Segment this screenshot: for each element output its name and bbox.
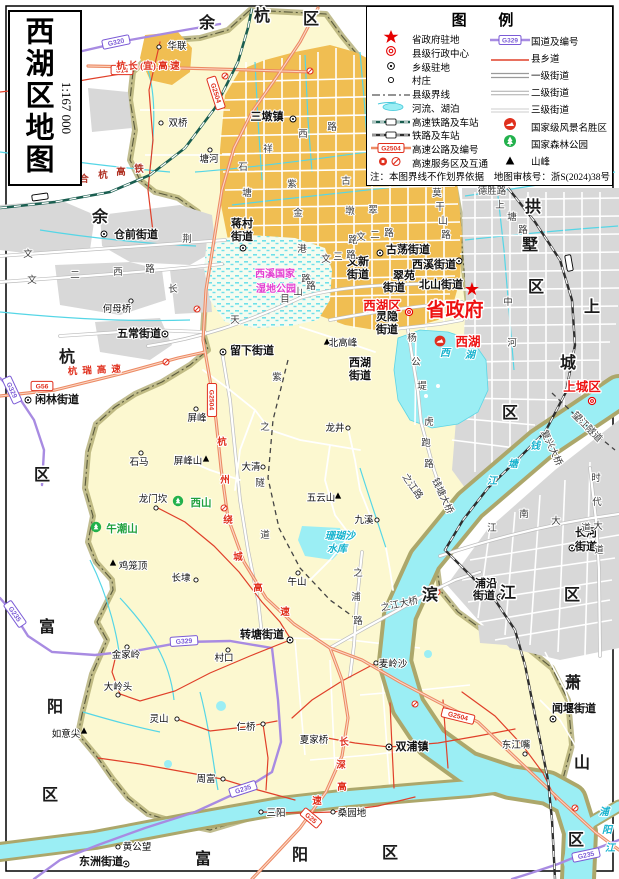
- map-label: 长: [339, 736, 349, 748]
- road-badge: G329: [2, 376, 22, 405]
- map-label: 周富: [196, 773, 215, 785]
- village-marker: [261, 465, 265, 469]
- county-outer: [405, 308, 412, 315]
- map-label: 西: [298, 129, 308, 140]
- map-label: 文: [321, 253, 331, 265]
- village-marker: [159, 121, 163, 125]
- map-label: 之: [353, 567, 363, 579]
- map-label: 村口: [214, 652, 233, 664]
- map-label: 江: [500, 584, 516, 602]
- railway-station-marker: [32, 193, 49, 201]
- map-label: 区: [303, 10, 319, 28]
- township-dot: [552, 718, 554, 720]
- forest-icon: [489, 134, 531, 153]
- map-label: 隧: [255, 477, 265, 489]
- map-label: 速: [280, 606, 290, 618]
- map-label: 省政府: [425, 298, 483, 321]
- map-label: 灵隐: [376, 309, 398, 323]
- map-label: 余: [91, 207, 109, 226]
- map-label: 绕: [223, 514, 233, 526]
- map-label: 代: [592, 497, 602, 508]
- map-label: 道: [594, 544, 604, 556]
- map-label: 上: [584, 298, 600, 316]
- map-label: 阳: [292, 846, 308, 864]
- county-road-icon: [489, 49, 531, 67]
- village-marker: [375, 518, 379, 522]
- map-label: 区: [42, 786, 58, 804]
- township-marker: [550, 716, 556, 722]
- map-label: 西溪街道: [412, 257, 456, 271]
- map-label: 道: [581, 522, 591, 534]
- map-label: 大清: [241, 461, 261, 473]
- township-dot: [388, 746, 390, 748]
- map-label: 麦岭沙: [379, 658, 408, 670]
- map-label: 高: [337, 781, 347, 793]
- road-badge: G329: [170, 635, 198, 646]
- map-label: 杭 长 (宜) 高 速: [116, 60, 180, 72]
- map-label: 闲林街道: [35, 392, 79, 406]
- map-label: 拱: [525, 197, 541, 216]
- map-label: 跑: [421, 437, 431, 449]
- village-marker: [374, 661, 378, 665]
- map-label: 虎: [424, 416, 434, 428]
- map-label: 东江嘴: [502, 739, 531, 751]
- township-marker: [101, 231, 107, 237]
- road-badge-text: G2504: [208, 390, 215, 411]
- township-marker: [240, 245, 246, 251]
- map-label: 区: [382, 844, 398, 862]
- map-label: 文: [356, 231, 366, 243]
- interchange-icon: [163, 359, 169, 365]
- map-label: 街道: [348, 368, 371, 382]
- map-label: 留下街道: [230, 343, 274, 357]
- map-label: 大: [551, 515, 561, 527]
- map-label: 上: [495, 200, 505, 211]
- township-dot: [27, 399, 29, 401]
- svg-text:G329: G329: [502, 37, 518, 44]
- map-label: 北山街道: [419, 277, 463, 291]
- map-label: 路: [327, 121, 337, 133]
- interchange-icon: [194, 306, 200, 312]
- road-badge: G320: [102, 35, 131, 50]
- map-label: 荆: [182, 233, 192, 245]
- map-label: 墩: [345, 205, 355, 217]
- map-label: 塘河: [199, 153, 219, 165]
- map-label: 区: [568, 831, 584, 849]
- map-label: 街道: [382, 280, 405, 294]
- village-marker: [157, 45, 161, 49]
- map-label: 杭: [98, 169, 108, 181]
- map-label: 区: [528, 278, 544, 296]
- map-label: 转塘街道: [240, 627, 284, 641]
- map-label: 阳: [47, 698, 63, 716]
- road-badge: G56: [31, 381, 53, 390]
- map-label: 三墩镇: [251, 109, 284, 123]
- map-label: 何母桥: [103, 303, 132, 315]
- map-label: 上城区: [563, 379, 601, 394]
- map-label: 长: [168, 283, 178, 295]
- village-marker: [116, 845, 120, 849]
- village-marker: [523, 752, 527, 756]
- map-label: 屏峰山: [174, 456, 203, 467]
- map-label: 浦: [351, 591, 361, 603]
- village-marker: [259, 810, 263, 814]
- village-marker: [221, 777, 225, 781]
- map-label: 州: [219, 475, 230, 486]
- map-label: 西: [113, 267, 123, 278]
- map-label: 翠苑: [393, 268, 415, 282]
- map-label: 铁: [134, 163, 144, 175]
- map-label: 西溪国家: [255, 267, 296, 280]
- village-marker: [175, 717, 179, 721]
- legend-label: 县乡道: [531, 51, 560, 65]
- map-label: 屏峰: [187, 413, 207, 424]
- map-label: 西湖: [455, 334, 480, 349]
- map-label: 路: [441, 229, 451, 241]
- interchange-icon: [412, 701, 418, 707]
- map-label: 路: [145, 263, 155, 275]
- title-box: 西湖区地图 1:167 000: [8, 10, 82, 186]
- map-label: 龙井: [325, 422, 344, 434]
- map-label: 公: [411, 357, 421, 368]
- map-label: 紫: [272, 372, 282, 383]
- township-marker: [287, 637, 293, 643]
- street2-icon: [489, 83, 531, 101]
- map-label: 桑园地: [338, 807, 367, 819]
- township-dot: [222, 351, 224, 353]
- map-label: 石马: [129, 457, 148, 468]
- village-marker: [116, 693, 120, 697]
- township-dot: [164, 333, 166, 335]
- map-label: 区: [34, 466, 50, 484]
- map-label: 二: [370, 231, 380, 241]
- map-label: 速: [312, 795, 322, 807]
- village-marker: [331, 810, 335, 814]
- legend-label: 一级街道: [531, 68, 569, 82]
- village-marker: [129, 299, 133, 303]
- map-label: 仓前街道: [113, 227, 158, 241]
- map-label: 城: [560, 354, 576, 372]
- legend-label: 县级界线: [412, 87, 450, 101]
- village-marker: [125, 645, 129, 649]
- legend-title: 图 例: [367, 9, 612, 30]
- map-label: 滨: [422, 585, 438, 604]
- map-label: 街道: [346, 267, 369, 281]
- map-label: 古荡街道: [386, 242, 430, 256]
- township-dot: [125, 863, 127, 865]
- map-label: 山: [574, 754, 590, 772]
- map-label: 金: [293, 207, 303, 219]
- map-label: 路: [306, 280, 316, 292]
- scenic-icon: [489, 117, 531, 136]
- legend-note: 注：本图界线不作划界依据 地图审核号：浙S(2024)38号: [370, 169, 610, 183]
- village-marker: [226, 648, 230, 652]
- legend-label: 山峰: [531, 154, 550, 168]
- map-label: 古: [341, 175, 351, 187]
- township-marker: [162, 331, 168, 337]
- village-marker: [194, 407, 198, 411]
- village-marker: [346, 426, 350, 430]
- township-marker: [123, 861, 129, 867]
- township-marker: [456, 258, 462, 264]
- map-label: 珊瑚沙: [325, 530, 356, 542]
- map-label: 塘: [507, 211, 517, 223]
- township-dot: [458, 260, 460, 262]
- map-label: 区: [502, 404, 518, 422]
- lake-island: [436, 384, 440, 388]
- map-label: 文: [27, 274, 37, 286]
- map-label: 夏家桥: [300, 734, 329, 746]
- interchange-icon: [572, 805, 578, 811]
- map-label: 区: [564, 586, 580, 604]
- township-dot: [289, 639, 291, 641]
- map-label: 紫: [287, 179, 297, 190]
- map-label: 道: [260, 529, 270, 541]
- township-marker: [25, 397, 31, 403]
- map-label: 北高峰: [329, 337, 358, 349]
- map-label: 九溪: [354, 514, 374, 526]
- road-badge: G2504: [207, 384, 216, 417]
- map-label: 水库: [327, 543, 349, 555]
- street1-icon: [489, 66, 531, 84]
- county-center-marker: [588, 397, 595, 404]
- township-dot: [571, 547, 573, 549]
- map-label: 三阳: [266, 808, 285, 819]
- map-label: 石: [238, 163, 248, 173]
- interchange-icon: [307, 68, 313, 74]
- legend-label: 河流、湖泊: [412, 101, 460, 115]
- legend: 图 例 省政府驻地 县级行政中心 乡级驻地 村庄 县级界线 河流、湖泊 高速铁路…: [366, 6, 613, 186]
- map-label: 中: [503, 296, 513, 308]
- map-label: 三: [333, 253, 343, 263]
- legend-note-text: 注：本图界线不作划界依据: [370, 169, 484, 183]
- road-badge: G235: [3, 600, 26, 628]
- scenic-icon: [435, 336, 446, 347]
- map-label: 鸡笼顶: [119, 560, 148, 572]
- map-title: 西湖区地图: [16, 16, 58, 176]
- map-label: 萧: [565, 673, 581, 692]
- map-label: 南: [519, 508, 529, 520]
- map-label: 蒋村: [231, 216, 253, 230]
- map-label: 长埭: [171, 572, 191, 584]
- legend-left-column: 省政府驻地 县级行政中心 乡级驻地 村庄 县级界线 河流、湖泊 高速铁路及车站 …: [370, 32, 488, 170]
- legend-label: 二级街道: [531, 85, 569, 99]
- map-label: 东洲街道: [79, 854, 123, 868]
- township-marker: [220, 349, 226, 355]
- legend-label: 村庄: [412, 73, 431, 87]
- map-label: 仁桥: [236, 721, 256, 733]
- map-label: 余: [198, 13, 216, 32]
- map-label: 墅: [522, 236, 538, 254]
- lake-island: [424, 394, 428, 398]
- map-label: 杭: [254, 6, 270, 25]
- legend-label: 县级行政中心: [412, 46, 469, 60]
- map-label: 祥: [263, 143, 273, 155]
- national-road-badge-icon: G329: [489, 32, 531, 50]
- map-label: 午潮山: [106, 522, 138, 535]
- provincial-gov-star: ★: [464, 279, 480, 299]
- peak-icon: [489, 152, 531, 170]
- legend-label: 三级街道: [531, 102, 569, 116]
- map-label: 翠: [368, 205, 378, 216]
- map-label: 路: [384, 227, 394, 239]
- township-dot: [379, 252, 381, 254]
- map-label: 黄公望: [123, 841, 152, 853]
- legend-label: 铁路及车站: [412, 128, 460, 142]
- map-label: 富: [39, 617, 55, 636]
- map-label: 湿地公园: [256, 282, 296, 295]
- legend-label: 国道及编号: [531, 34, 579, 48]
- map-label: 如意尖: [52, 728, 81, 740]
- map-label: 双浦镇: [396, 739, 429, 753]
- map-label: 时: [591, 472, 601, 484]
- map-label: 堤: [417, 380, 427, 392]
- map-label: 文: [23, 248, 33, 260]
- legend-label: 高速公路及编号: [412, 142, 479, 156]
- map-label: 西湖: [349, 355, 371, 369]
- map-label: 杨: [407, 332, 417, 344]
- village-marker: [296, 571, 300, 575]
- map-label: 灵山: [149, 714, 168, 725]
- map-label: 街道: [375, 322, 398, 336]
- map-label: 塘: [242, 187, 252, 199]
- street3-icon: [489, 100, 531, 118]
- map-label: 西山: [191, 496, 212, 509]
- legend-label: 国家级风景名胜区: [531, 120, 607, 134]
- map-label: 街道: [472, 588, 495, 602]
- village-marker: [208, 148, 212, 152]
- map-page: ★G320S14G2504G2504G2504G25G56G329G329G23…: [0, 0, 619, 879]
- legend-right-column: G329国道及编号 县乡道 一级街道 二级街道 三级街道 国家级风景名胜区 国家…: [489, 32, 611, 170]
- village-marker: [139, 451, 143, 455]
- map-label: 莫: [432, 187, 442, 199]
- township-marker: [386, 744, 392, 750]
- map-scale: 1:167 000: [58, 82, 74, 134]
- map-label: 杭: [217, 436, 227, 448]
- map-label: 港: [297, 243, 307, 255]
- forest-park-icon: [173, 496, 183, 506]
- map-label: 大岭头: [104, 681, 133, 693]
- county-outer: [588, 397, 595, 404]
- township-dot: [242, 247, 244, 249]
- township-dot: [292, 118, 294, 120]
- map-label: 龙门坎: [139, 493, 168, 505]
- map-label: 德胜路: [478, 185, 507, 197]
- village-marker: [261, 722, 265, 726]
- interchange-icon: [222, 73, 228, 79]
- legend-label: 高速铁路及车站: [412, 115, 479, 129]
- map-label: 之: [260, 421, 270, 433]
- township-marker: [377, 250, 383, 256]
- map-label: 路: [346, 249, 356, 261]
- map-label: 干: [435, 202, 445, 213]
- legend-label: 省政府驻地: [412, 32, 460, 46]
- map-label: 目: [280, 294, 290, 305]
- map-label: 五常街道: [117, 326, 161, 340]
- map-label: 路: [424, 458, 434, 470]
- map-label: 华联: [167, 40, 187, 52]
- map-label: 金家岭: [112, 649, 141, 661]
- map-label: 五云山: [307, 493, 336, 504]
- map-label: 城: [233, 551, 243, 563]
- road-badge-text: G56: [36, 383, 49, 390]
- map-label: 深: [336, 759, 346, 771]
- township-dot: [103, 233, 105, 235]
- legend-label: 高速服务区及互通: [412, 156, 488, 170]
- map-label: 富: [195, 849, 211, 868]
- map-label: 高: [116, 166, 126, 178]
- map-label: 路: [518, 224, 528, 236]
- map-label: 二: [70, 271, 80, 281]
- map-label: 天: [230, 316, 240, 326]
- map-label: 河: [507, 337, 517, 349]
- township-marker: [290, 116, 296, 122]
- map-label: 江: [487, 523, 497, 534]
- village-marker: [154, 506, 158, 510]
- map-label: 双桥: [168, 117, 188, 129]
- map-label: 路: [353, 615, 363, 627]
- map-label: 大: [593, 520, 603, 532]
- legend-label: 国家森林公园: [531, 137, 588, 151]
- road-badge-text: G329: [176, 638, 193, 646]
- legend-label: 乡级驻地: [412, 60, 450, 74]
- svg-text:G2504: G2504: [381, 146, 401, 153]
- map-label: 山: [438, 216, 448, 227]
- interchange-icon: [221, 505, 227, 511]
- forest-park-icon: [91, 522, 101, 532]
- map-label: 高: [253, 582, 263, 594]
- map-label: 闻堰街道: [552, 701, 596, 715]
- legend-audit-number: 地图审核号：浙S(2024)38号: [494, 169, 610, 183]
- map-label: 阳: [602, 824, 614, 836]
- map-label: 浦沿: [475, 576, 497, 590]
- map-label: 午山: [287, 576, 306, 588]
- map-label: 杭: [59, 347, 75, 366]
- county-center-marker: [405, 308, 412, 315]
- village-marker: [194, 578, 198, 582]
- map-label: 街道: [230, 229, 253, 243]
